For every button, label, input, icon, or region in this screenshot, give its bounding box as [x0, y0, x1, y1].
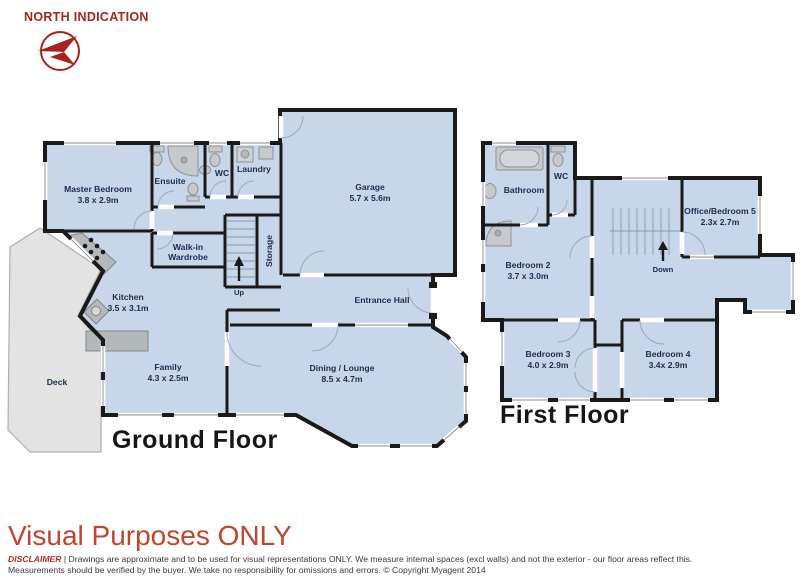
label-bedroom3-dims: 4.0 x 2.9m	[527, 360, 568, 370]
first-floor-plan: Bathroom WC Office/Bedroom 5 2.3x 2.7m B…	[483, 143, 793, 400]
label-ensuite: Ensuite	[154, 176, 185, 186]
footer: Visual Purposes ONLY DISCLAIMER | Drawin…	[8, 521, 796, 576]
label-wc-first: WC	[554, 171, 568, 181]
ground-floor-plan: Master Bedroom 3.8 x 2.9m Ensuite WC Lau…	[8, 110, 466, 452]
disclaimer-line2: Measurements should be verified by the b…	[8, 565, 486, 575]
disclaimer-text: DISCLAIMER | Drawings are approximate an…	[8, 554, 796, 576]
label-garage-dims: 5.7 x 5.6m	[349, 193, 390, 203]
kitchen-sink-icon	[92, 307, 101, 316]
label-bedroom4-dims: 3.4x 2.9m	[649, 360, 688, 370]
label-bedroom2: Bedroom 2	[506, 260, 551, 270]
disclaimer-line1: | Drawings are approximate and to be use…	[64, 554, 692, 564]
label-office: Office/Bedroom 5	[684, 206, 756, 216]
disclaimer-label: DISCLAIMER	[8, 554, 61, 564]
label-walkin-1: Walk-in	[173, 242, 203, 252]
label-master-bedroom: Master Bedroom	[64, 184, 132, 194]
label-office-dims: 2.3x 2.7m	[701, 217, 740, 227]
floorplan-drawing: Master Bedroom 3.8 x 2.9m Ensuite WC Lau…	[0, 0, 800, 583]
label-down: Down	[653, 265, 674, 274]
label-bedroom2-dims: 3.7 x 3.0m	[507, 271, 548, 281]
label-garage: Garage	[355, 182, 385, 192]
label-deck: Deck	[47, 377, 68, 387]
label-family: Family	[154, 362, 181, 372]
visual-purposes-headline: Visual Purposes ONLY	[8, 521, 796, 551]
label-bathroom: Bathroom	[504, 185, 545, 195]
first-floor-title: First Floor	[500, 401, 629, 430]
north-compass-icon	[26, 24, 106, 84]
label-kitchen: Kitchen	[112, 292, 144, 302]
label-dining-dims: 8.5 x 4.7m	[321, 374, 362, 384]
floorplan-page: Master Bedroom 3.8 x 2.9m Ensuite WC Lau…	[0, 0, 800, 583]
label-wc-ground: WC	[215, 168, 229, 178]
label-bedroom3: Bedroom 3	[526, 349, 571, 359]
label-bedroom4: Bedroom 4	[646, 349, 691, 359]
label-storage: Storage	[264, 235, 274, 267]
label-walkin-2: Wardrobe	[168, 252, 208, 262]
label-dining: Dining / Lounge	[310, 363, 375, 373]
label-laundry: Laundry	[237, 164, 271, 174]
ground-floor-title: Ground Floor	[112, 426, 278, 455]
label-entrance-hall: Entrance Hall	[355, 295, 410, 305]
label-kitchen-dims: 3.5 x 3.1m	[107, 303, 148, 313]
label-family-dims: 4.3 x 2.5m	[147, 373, 188, 383]
label-master-dims: 3.8 x 2.9m	[77, 195, 118, 205]
label-up: Up	[234, 288, 244, 297]
north-indication-label: NORTH INDICATION	[24, 10, 149, 24]
